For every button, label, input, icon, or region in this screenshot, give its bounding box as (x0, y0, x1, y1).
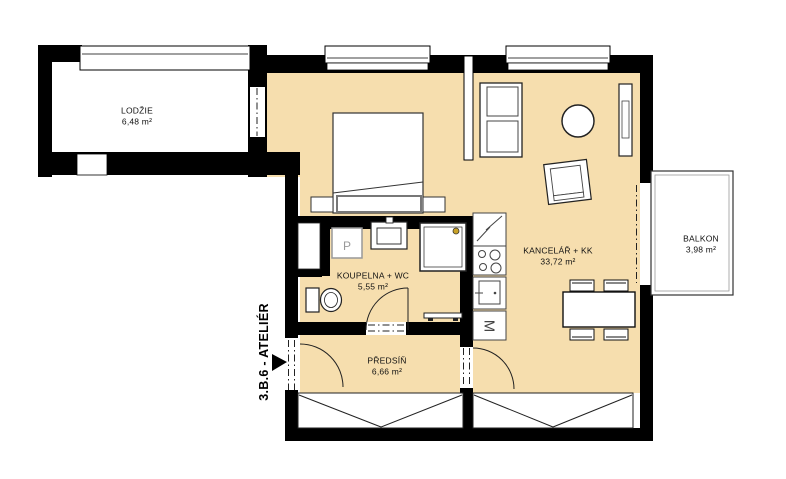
room-area: 6,48 m² (121, 117, 153, 128)
bench-leg-left (428, 318, 433, 321)
armchair-seat (550, 165, 583, 195)
chair-1 (570, 280, 594, 291)
wall-right-upper (640, 55, 653, 183)
room-name: KOUPELNA + WC (337, 271, 409, 282)
window-bedroom-sill (327, 63, 428, 70)
dining-table (563, 292, 635, 327)
room-label-koupelna: KOUPELNA + WC 5,55 m² (337, 271, 409, 294)
dishwasher-symbol: M (481, 320, 498, 333)
chair-2 (604, 280, 628, 291)
window-office-sill (508, 63, 608, 70)
bed-headboard (337, 196, 421, 212)
room-label-kancelar: KANCELÁŘ + KK 33,72 m² (523, 246, 592, 269)
armchair (544, 159, 592, 204)
floor-plan: P M (0, 0, 786, 479)
room-label-predsin: PŘEDSÍŇ 6,66 m² (367, 356, 406, 379)
room-label-balkon: BALKON 3,98 m² (683, 234, 719, 257)
room-area: 33,72 m² (523, 257, 592, 268)
room-name: PŘEDSÍŇ (367, 356, 406, 367)
window-office (506, 46, 610, 63)
wall-shaft-bottom (293, 269, 322, 277)
washbasin-tap (386, 217, 393, 223)
wall-wardrobe-divider (463, 393, 473, 428)
wall-loggia-corner (38, 45, 82, 62)
round-table (562, 105, 594, 137)
room-name: BALKON (683, 234, 719, 245)
room-area: 5,55 m² (337, 282, 409, 293)
chair-4 (604, 329, 628, 340)
floor-plan-drawing: P M (0, 0, 786, 479)
toilet-tank (306, 288, 319, 312)
nightstand-right (423, 197, 445, 212)
washing-machine-symbol: P (343, 239, 351, 253)
cabinet-upper (487, 87, 518, 116)
room-name: KANCELÁŘ + KK (523, 246, 592, 257)
bench-leg-right (453, 318, 458, 321)
room-area: 6,66 m² (367, 367, 406, 378)
room-label-lodzie: LODŽIE 6,48 m² (121, 106, 153, 129)
sink-drain (494, 292, 497, 295)
kitchen-group: M (473, 213, 506, 340)
room-area: 3,98 m² (683, 245, 719, 256)
cabinet-lower (487, 121, 518, 152)
room-name: LODŽIE (121, 106, 153, 117)
glass-partition-fin (464, 56, 473, 160)
shower-drain (453, 228, 459, 234)
nightstand-left (311, 197, 333, 212)
installation-shaft (298, 223, 320, 269)
unit-label: 3.B.6 - ATELIÉR (257, 303, 271, 401)
window-bedroom (325, 46, 430, 63)
fridge (473, 213, 506, 246)
loggia-railing (80, 46, 250, 70)
wall-bottom (285, 428, 653, 441)
cooktop (473, 246, 506, 275)
bench (424, 313, 462, 318)
loggia-bottom-window (77, 154, 107, 175)
wardrobe-right (473, 393, 633, 428)
entrance-door-opening (285, 338, 298, 390)
wall-left-lower (285, 175, 298, 340)
entrance-arrow-icon (272, 354, 287, 371)
wall-right-lower (640, 285, 653, 441)
chair-3 (570, 329, 594, 340)
washbasin-bowl (377, 228, 401, 244)
hall-office-door-opening (460, 347, 473, 388)
wall-shaft-stub (320, 216, 330, 276)
bathroom-door-opening (366, 322, 406, 335)
wall-shelf-inner (622, 101, 629, 138)
wardrobe-left (298, 393, 463, 428)
